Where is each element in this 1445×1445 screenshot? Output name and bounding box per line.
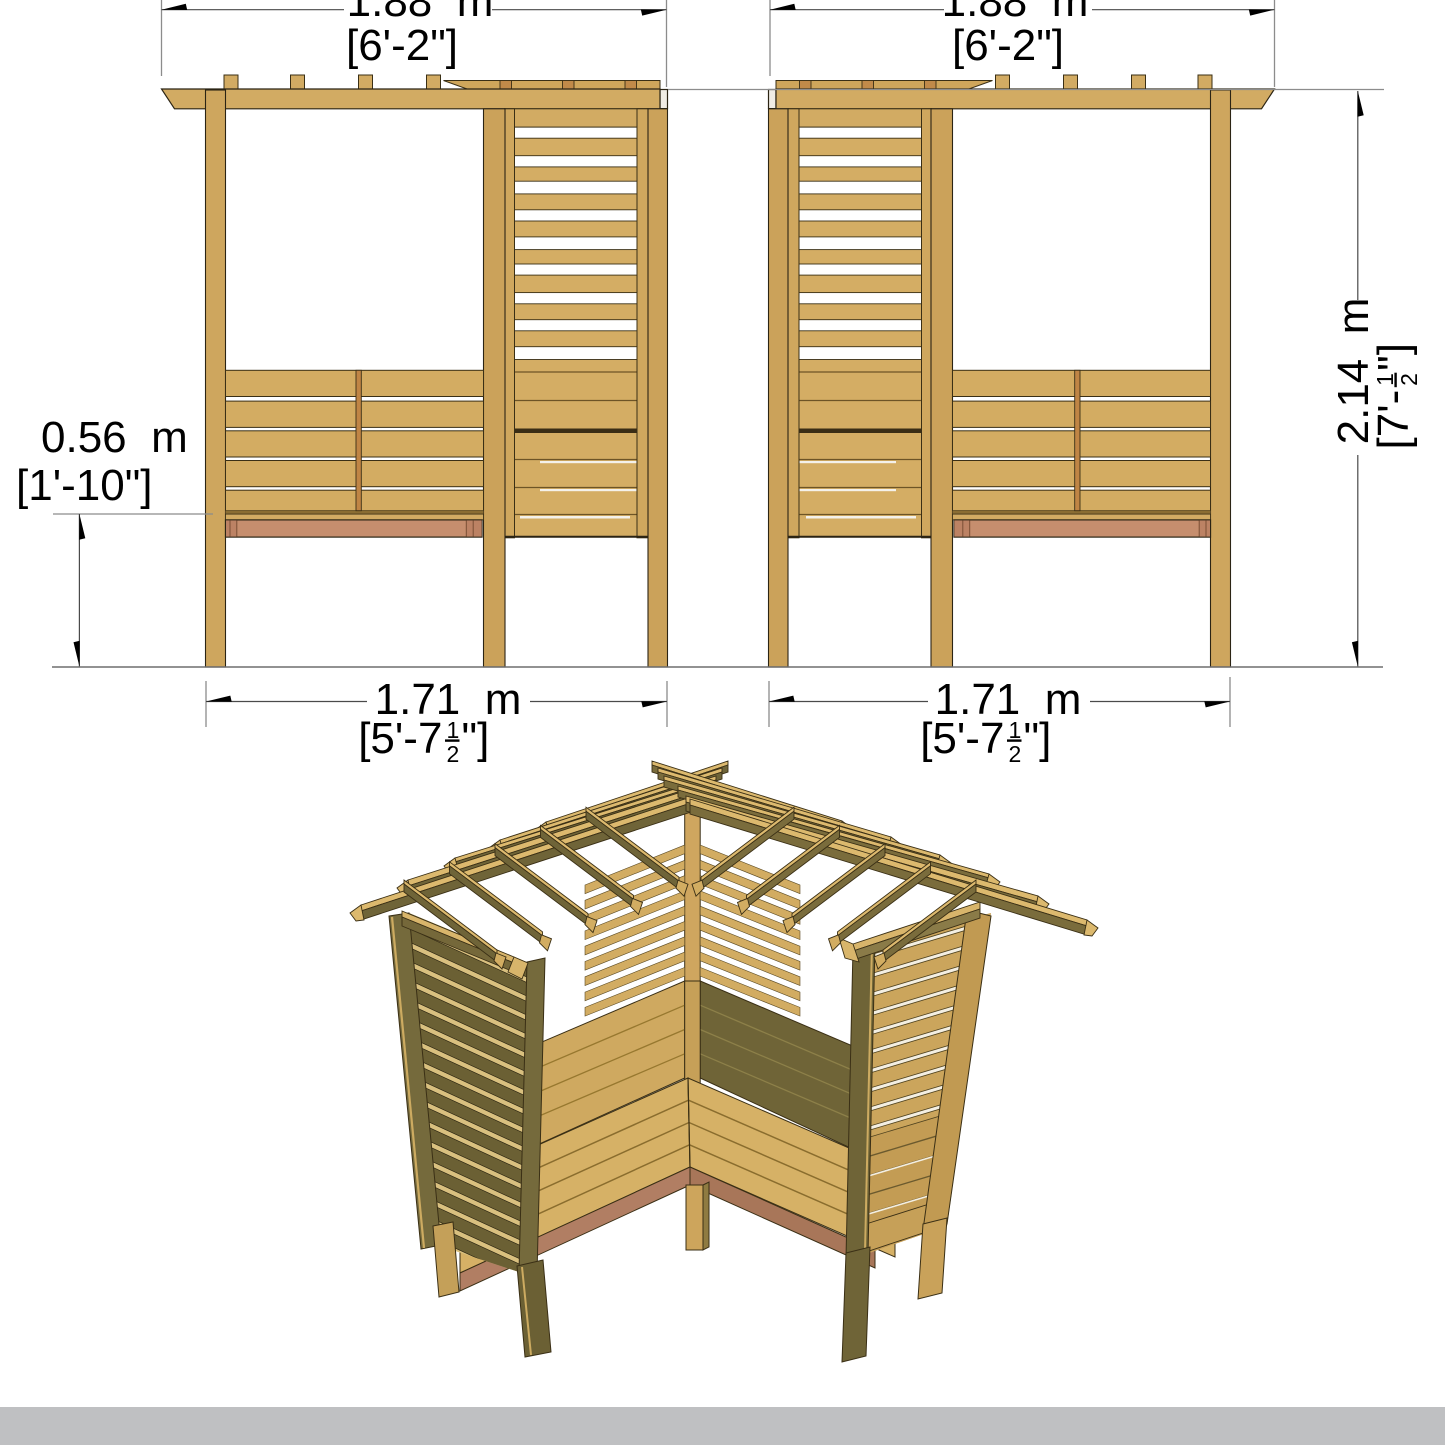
svg-text:1: 1	[1372, 373, 1398, 386]
svg-text:2: 2	[1009, 741, 1022, 767]
svg-text:2: 2	[1396, 373, 1422, 386]
svg-text:[6'-2"]: [6'-2"]	[346, 21, 458, 70]
svg-text:[5'-7: [5'-7	[920, 714, 1004, 763]
svg-text:[5'-7: [5'-7	[358, 714, 442, 763]
svg-text:"]: "]	[1369, 343, 1418, 371]
svg-text:"]: "]	[462, 714, 490, 763]
svg-text:1: 1	[1009, 717, 1022, 743]
svg-text:2: 2	[447, 741, 460, 767]
svg-text:[7'-: [7'-	[1369, 390, 1418, 450]
svg-text:1: 1	[447, 717, 460, 743]
svg-text:[1'-10"]: [1'-10"]	[16, 461, 153, 510]
svg-text:0.56 m: 0.56 m	[41, 413, 188, 462]
svg-text:[6'-2"]: [6'-2"]	[952, 21, 1064, 70]
svg-text:"]: "]	[1024, 714, 1052, 763]
